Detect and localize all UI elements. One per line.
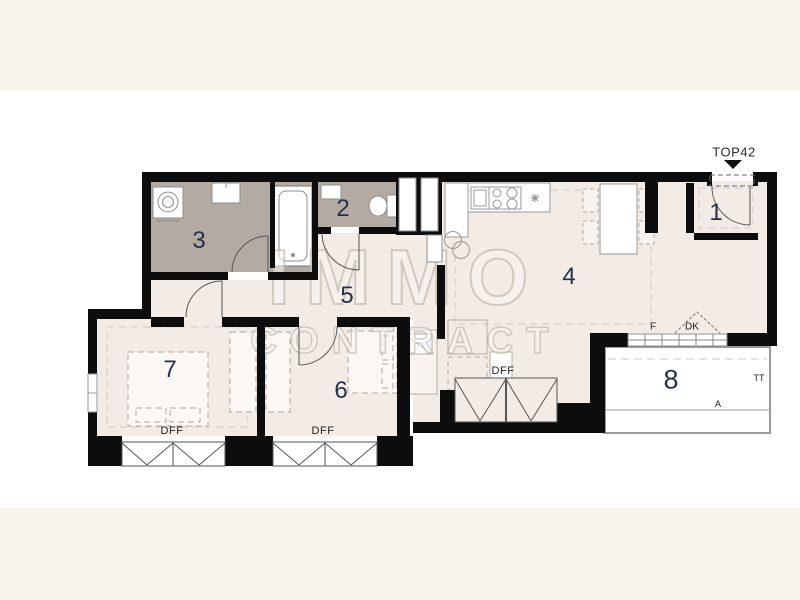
door-bedroom7 [186,281,222,317]
room-number-4: 4 [562,263,575,291]
dff-label-living: DFF [492,365,515,377]
walls-and-openings-layer [0,0,800,600]
room-number-3: 3 [192,227,205,255]
window-left-wall [88,374,97,412]
wall-left-upper [142,172,151,319]
window-f-label: F [650,322,656,333]
dff-label-bedroom7: DFF [161,425,184,437]
shaft-niches [399,178,442,262]
window-living-dff [455,378,557,422]
door-wc [322,233,359,270]
entry-door-frame [710,175,754,186]
wall-right [767,172,777,346]
entry-arrow-icon [724,160,742,169]
dff-label-bedroom6: DFF [312,425,335,437]
room-number-6: 6 [334,377,347,405]
door-bedroom6 [299,327,337,365]
door-bathroom [232,236,268,272]
room-number-5: 5 [340,282,353,310]
room-number-7: 7 [163,356,176,384]
balcony-a-label: A [715,399,721,409]
room-number-1: 1 [709,199,722,227]
floor-plan: IMMO CONTRACT [0,0,800,600]
room-number-8: 8 [663,365,678,396]
window-bedroom7 [122,442,225,466]
door-dk-label: DK [685,322,699,333]
balcony-door-window [628,334,727,346]
unit-label: TOP42 [712,145,755,160]
entry-partition-wall [645,172,658,233]
room-number-2: 2 [336,195,349,223]
balcony-tt-label: TT [754,373,765,383]
window-bedroom6 [273,442,377,466]
